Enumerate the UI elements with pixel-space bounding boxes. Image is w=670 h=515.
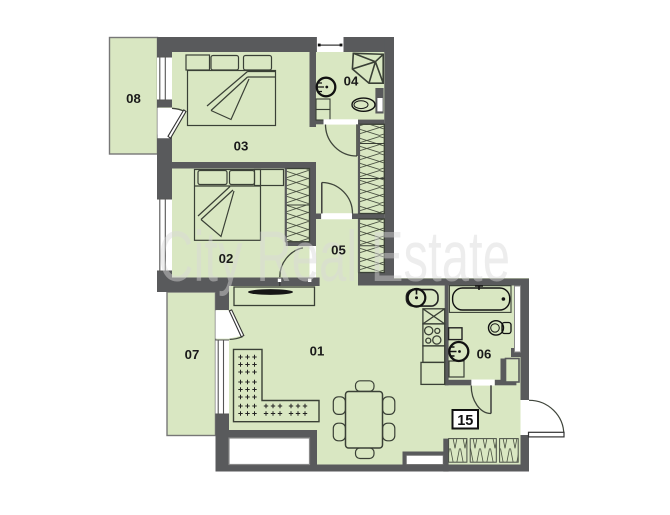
svg-text:02: 02 [219, 251, 234, 266]
svg-text:08: 08 [126, 91, 141, 106]
svg-text:15: 15 [457, 413, 473, 429]
svg-text:07: 07 [185, 347, 200, 362]
svg-text:City Real Estate: City Real Estate [158, 218, 510, 297]
svg-text:06: 06 [477, 346, 492, 361]
svg-text:03: 03 [234, 138, 249, 153]
svg-text:01: 01 [310, 343, 325, 358]
svg-text:04: 04 [344, 73, 359, 88]
svg-text:05: 05 [331, 242, 346, 257]
